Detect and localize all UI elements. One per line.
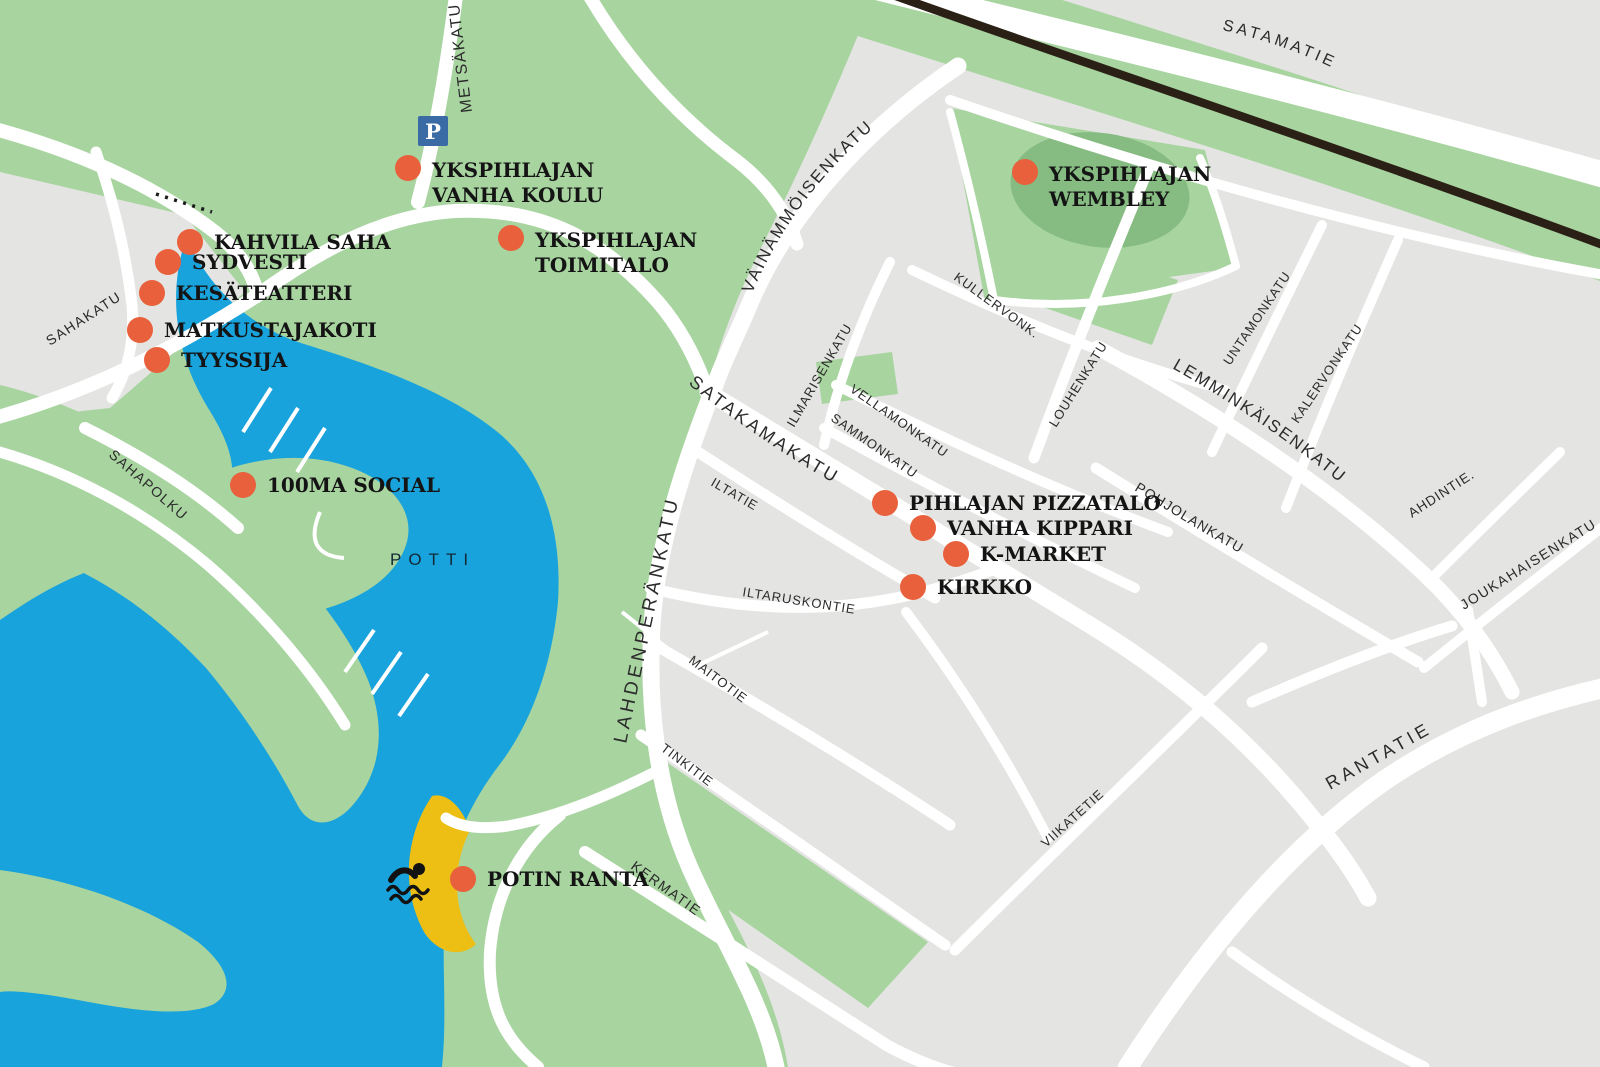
map-canvas: METSÄKATU SATAMATIE VÄINÄMMÖISENKATU SAH…	[0, 0, 1600, 1067]
poi-marker	[872, 490, 898, 516]
poi-label: TOIMITALO	[535, 253, 669, 277]
poi-label: SYDVESTI	[192, 250, 307, 274]
poi-marker	[127, 317, 153, 343]
poi-tyyssija: TYYSSIJA	[144, 347, 288, 373]
parking-letter: P	[425, 119, 441, 144]
poi-pihlajan-pizzatalo: PIHLAJAN PIZZATALO	[872, 490, 1161, 516]
poi-marker	[155, 249, 181, 275]
poi-label: 100MA SOCIAL	[267, 473, 440, 497]
poi-label: WEMBLEY	[1048, 187, 1170, 211]
poi-marker	[230, 472, 256, 498]
poi-kirkko: KIRKKO	[900, 574, 1032, 600]
poi-marker	[395, 155, 421, 181]
parking-sign: P	[418, 116, 448, 146]
poi-label: TYYSSIJA	[181, 348, 288, 372]
poi-marker	[498, 225, 524, 251]
poi-marker	[943, 541, 969, 567]
poi-label: YKSPIHLAJAN	[431, 158, 594, 182]
poi-label: YKSPIHLAJAN	[1048, 162, 1211, 186]
poi-label: K-MARKET	[980, 542, 1106, 566]
poi-label: VANHA KOULU	[431, 183, 603, 207]
poi-label: VANHA KIPPARI	[946, 516, 1133, 540]
poi-label: MATKUSTAJAKOTI	[164, 318, 377, 342]
poi-label: PIHLAJAN PIZZATALO	[909, 491, 1161, 515]
water-label-potti: POTTI	[390, 550, 475, 569]
poi-label: POTIN RANTA	[487, 867, 649, 891]
poi-marker	[900, 574, 926, 600]
poi-label: KESÄTEATTERI	[176, 281, 352, 305]
poi-label: KIRKKO	[937, 575, 1032, 599]
poi-marker	[139, 280, 165, 306]
poi-matkustajakoti: MATKUSTAJAKOTI	[127, 317, 377, 343]
poi-marker	[1012, 159, 1038, 185]
poi-marker	[144, 347, 170, 373]
poi-marker	[450, 866, 476, 892]
poi-marker	[910, 515, 936, 541]
poi-label: YKSPIHLAJAN	[534, 228, 697, 252]
